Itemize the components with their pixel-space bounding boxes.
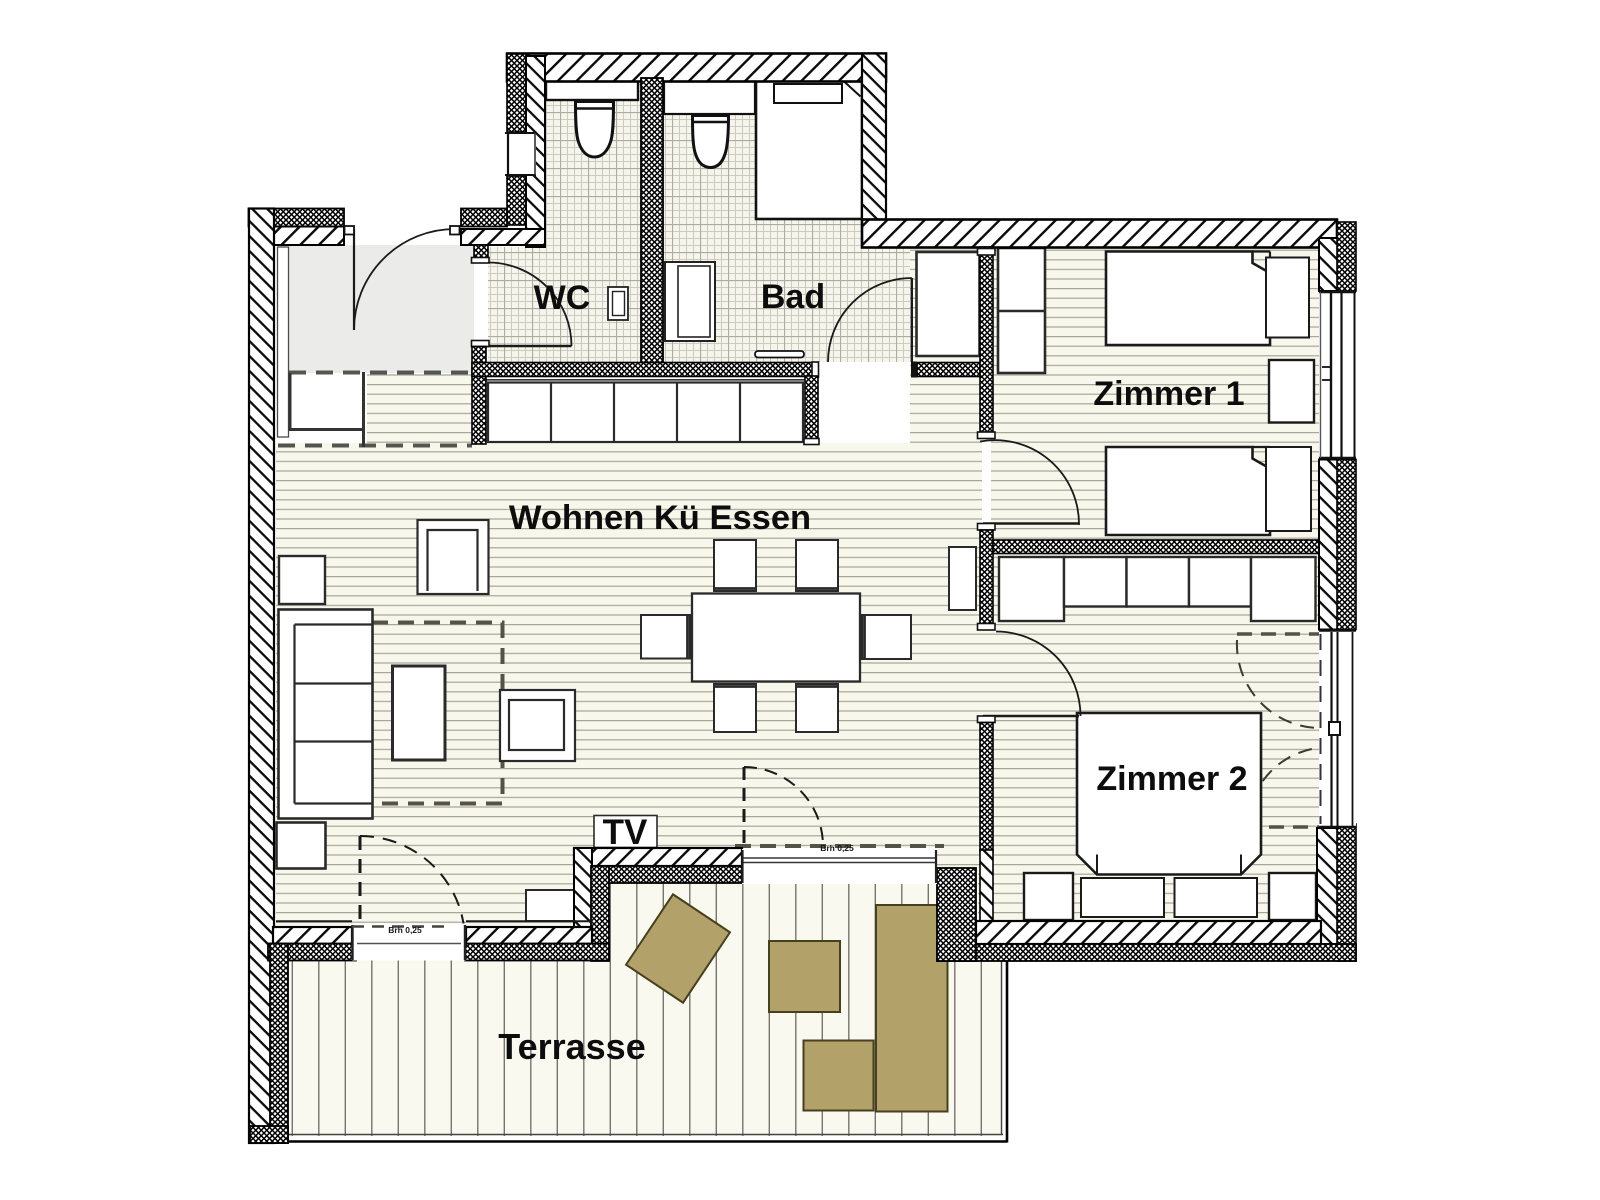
svg-text:Terrasse: Terrasse (498, 1026, 645, 1067)
svg-text:Zimmer 2: Zimmer 2 (1096, 760, 1247, 798)
svg-text:WC: WC (534, 279, 591, 317)
svg-text:Zimmer 1: Zimmer 1 (1093, 375, 1244, 413)
svg-text:Brh 0,25: Brh 0,25 (388, 925, 422, 935)
svg-text:TV: TV (603, 813, 648, 852)
svg-text:Wohnen Kü Essen: Wohnen Kü Essen (509, 499, 811, 537)
svg-text:Brh 0,25: Brh 0,25 (820, 843, 854, 853)
svg-text:Bad: Bad (761, 278, 825, 316)
